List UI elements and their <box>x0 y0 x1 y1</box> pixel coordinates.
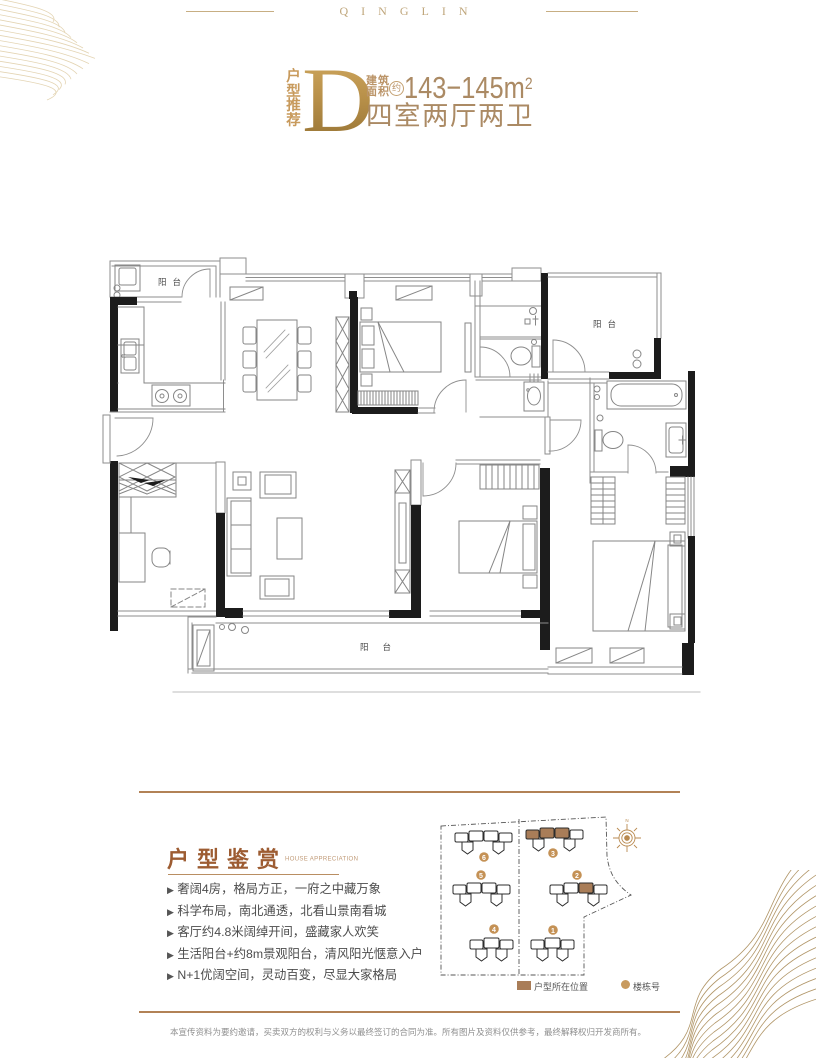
svg-text:5: 5 <box>479 873 483 880</box>
svg-text:4: 4 <box>492 927 496 934</box>
svg-text:2: 2 <box>575 873 579 880</box>
svg-text:阳台: 阳台 <box>360 642 405 652</box>
svg-text:1: 1 <box>551 928 555 935</box>
svg-text:3: 3 <box>551 851 555 858</box>
svg-text:阳台: 阳台 <box>158 277 187 287</box>
svg-text:N: N <box>625 818 628 823</box>
svg-text:阳台: 阳台 <box>593 319 622 329</box>
svg-text:6: 6 <box>482 855 486 862</box>
